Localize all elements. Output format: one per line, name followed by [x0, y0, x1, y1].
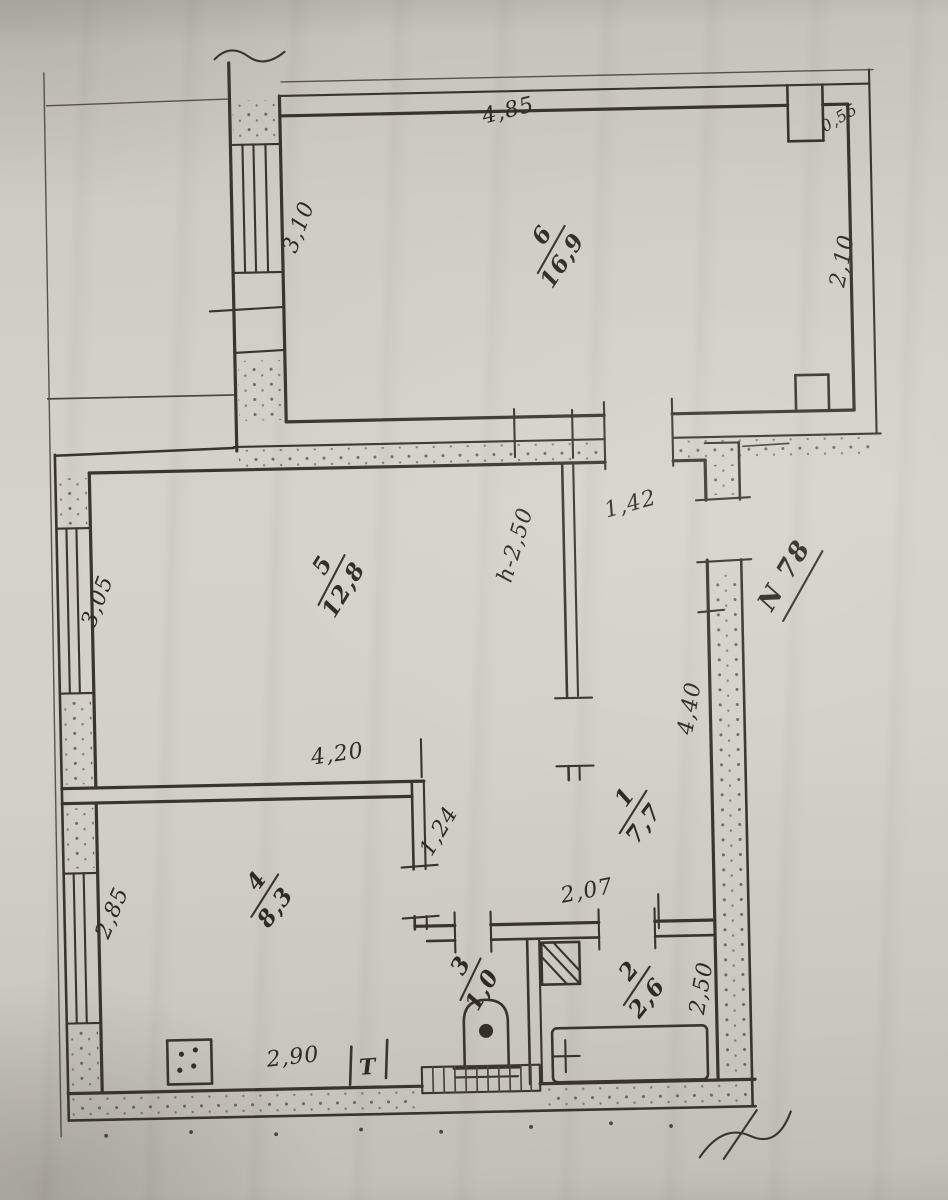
- vent-shaft-icon: [541, 942, 580, 985]
- ceiling-height-note: h-2,50: [493, 505, 539, 586]
- bottom-exterior-wall: [68, 1079, 756, 1141]
- hall-label: 1 7,7: [595, 775, 671, 850]
- room-6-window: [206, 144, 284, 354]
- apartment-number: N 78: [751, 533, 824, 621]
- wall-break-mark-top: [214, 49, 284, 62]
- wall-break-mark-bottom: [699, 1111, 792, 1157]
- room-4-label: 4 8,3: [226, 858, 303, 933]
- bathroom-label: 2 2,6: [598, 950, 674, 1024]
- room-5-partition: [550, 463, 594, 781]
- wall-stipple: [677, 437, 873, 459]
- wall-stipple: [66, 808, 94, 869]
- dim-room6-left: 3,10: [278, 198, 320, 256]
- wc-label: 3 1,0: [433, 945, 507, 1016]
- scanned-floor-plan-page: Т 6 16,9 4,85 3,10 2,10 0,55 5: [0, 0, 948, 1200]
- dim-bath-passage: 2,07: [558, 874, 616, 909]
- floor-plan-drawing: Т 6 16,9 4,85 3,10 2,10 0,55 5: [0, 0, 948, 1200]
- wall-stipple: [544, 1083, 750, 1107]
- wall-stipple: [64, 698, 93, 785]
- dim-room6-top: 4,85: [479, 92, 537, 129]
- dim-hall-length: 4,40: [673, 680, 707, 737]
- dim-passage: 1,24: [415, 802, 464, 860]
- towel-rail-label: Т: [358, 1054, 378, 1081]
- dim-room5-bottom: 4,20: [308, 738, 365, 770]
- wall-stipple: [238, 360, 283, 421]
- wall-stipple: [232, 100, 277, 143]
- dim-hall-entry: 1,42: [602, 485, 660, 523]
- towel-rail-icon: Т: [349, 1040, 388, 1085]
- wall-stipple: [59, 478, 87, 525]
- dim-room5-left: 3,05: [77, 572, 119, 630]
- wall-stipple: [71, 1028, 99, 1091]
- room4-top-wall: [61, 739, 424, 804]
- wall-stipple: [709, 464, 736, 495]
- bathtub-icon: [552, 1025, 708, 1082]
- dim-room4-bottom: 2,90: [264, 1042, 320, 1073]
- room5-top-wall: [55, 435, 873, 474]
- stove-icon: [167, 1040, 212, 1085]
- room-6-label: 6 16,9: [509, 211, 591, 293]
- dim-bath-length: 2,50: [685, 960, 719, 1017]
- room-4-window: [64, 873, 101, 1024]
- wc-bath-divider: [527, 939, 542, 1084]
- dim-room6-right: 2,10: [825, 232, 860, 290]
- room-5-label: 5 12,8: [290, 541, 371, 623]
